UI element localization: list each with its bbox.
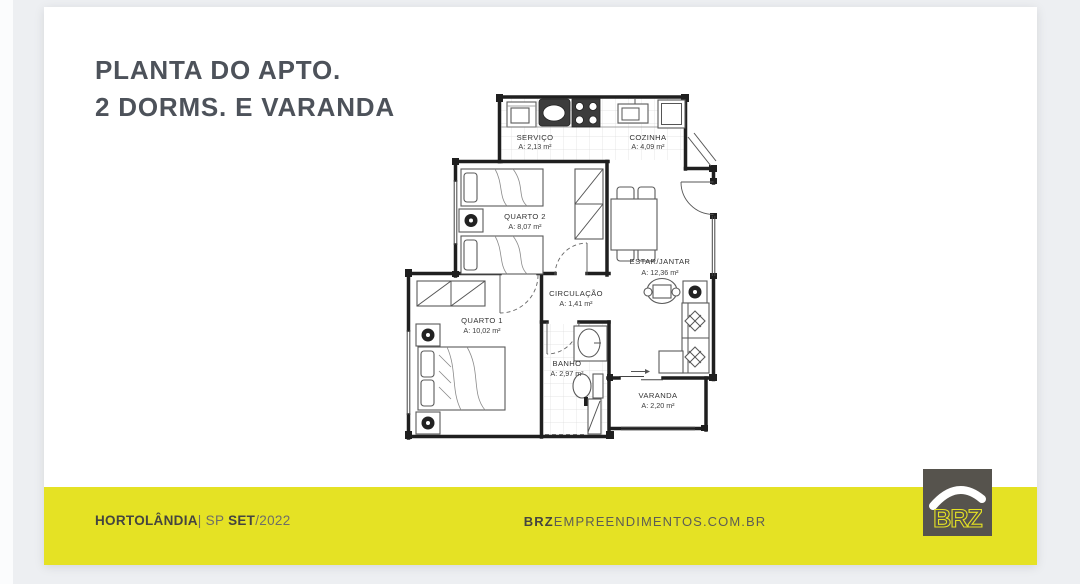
brz-logo: BRZ [923,469,992,536]
footer-website-brand: BRZ [524,514,554,529]
single-bed-icon [461,236,543,274]
svg-text:VARANDA: VARANDA [639,391,678,400]
footer-location: HORTOLÂNDIA| SP SET/2022 [95,513,291,528]
page-title-line1: PLANTA DO APTO. [95,52,395,89]
room-quarto1: QUARTO 1 A: 10,02 m² [461,316,503,335]
window-quarto2 [454,180,457,245]
logo-arc-icon [933,490,982,506]
logo-text: BRZ [933,505,982,533]
nightstand-lamp-icon [459,209,483,232]
svg-text:A: 12,36 m²: A: 12,36 m² [641,268,679,277]
svg-text:COZINHA: COZINHA [630,133,668,142]
bedroom1-furniture [416,281,505,434]
slide-arrow-icon [645,369,650,374]
svg-text:CIRCULAÇÃO: CIRCULAÇÃO [549,289,603,298]
wardrobe-icon [417,281,485,306]
footer-website-domain: EMPREENDIMENTOS.COM.BR [554,514,766,529]
armchair-icon [644,279,680,304]
page-title-line2: 2 DORMS. E VARANDA [95,89,395,126]
window-quarto1 [407,330,410,415]
page-title: PLANTA DO APTO. 2 DORMS. E VARANDA [95,52,395,126]
varanda-sliding-door [619,369,663,380]
nightstand-lamp-icon [416,412,440,434]
double-bed-icon [418,347,505,410]
dining-table-icon [611,199,657,250]
svg-text:A: 4,09 m²: A: 4,09 m² [631,142,665,151]
nightstand-lamp-icon [416,324,440,346]
living-dining-furniture [611,187,709,373]
window-estar [712,216,715,276]
room-banho: BANHO A: 2,97 m² [550,359,584,378]
svg-text:A: 1,41 m²: A: 1,41 m² [559,299,593,308]
side-table-lamp-icon [683,281,707,303]
room-estar: ESTAR/JANTAR A: 12,36 m² [630,257,691,277]
wardrobe-icon [575,169,603,239]
footer-website: BRZEMPREENDIMENTOS.COM.BR [524,514,767,529]
room-circulacao: CIRCULAÇÃO A: 1,41 m² [549,289,603,308]
footer-state: | SP [198,513,228,528]
window-edge-strip [0,0,13,584]
room-servico: SERVIÇO A: 2,13 m² [517,133,554,151]
svg-text:QUARTO 2: QUARTO 2 [504,212,546,221]
brz-logo-graphic: BRZ [923,469,992,536]
entry-door [681,182,714,215]
svg-text:QUARTO 1: QUARTO 1 [461,316,503,325]
room-quarto2: QUARTO 2 A: 8,07 m² [504,212,546,231]
bathroom-sink-icon [574,326,607,361]
coffee-table-icon [659,351,683,373]
room-varanda: VARANDA A: 2,20 m² [639,391,678,410]
footer-city: HORTOLÂNDIA [95,513,198,528]
single-bed-icon [461,169,543,206]
svg-text:SERVIÇO: SERVIÇO [517,133,554,142]
svg-text:BANHO: BANHO [552,359,581,368]
svg-text:ESTAR/JANTAR: ESTAR/JANTAR [630,257,691,266]
quarto2-door [555,243,587,275]
svg-text:A: 2,97 m²: A: 2,97 m² [550,369,584,378]
floor-plan-drawing: SERVIÇO A: 2,13 m² COZINHA A: 4,09 m² QU… [395,85,785,450]
footer-bar: HORTOLÂNDIA| SP SET/2022 BRZEMPREENDIMEN… [44,487,1037,565]
svg-text:A: 8,07 m²: A: 8,07 m² [508,222,542,231]
footer-month: SET [228,513,255,528]
svg-text:A: 10,02 m²: A: 10,02 m² [463,326,501,335]
floor-plan: SERVIÇO A: 2,13 m² COZINHA A: 4,09 m² QU… [395,85,785,450]
footer-year: /2022 [255,513,290,528]
room-cozinha: COZINHA A: 4,09 m² [630,133,668,151]
svg-text:A: 2,20 m²: A: 2,20 m² [641,401,675,410]
svg-text:A: 2,13 m²: A: 2,13 m² [518,142,552,151]
quarto1-door [500,275,538,313]
